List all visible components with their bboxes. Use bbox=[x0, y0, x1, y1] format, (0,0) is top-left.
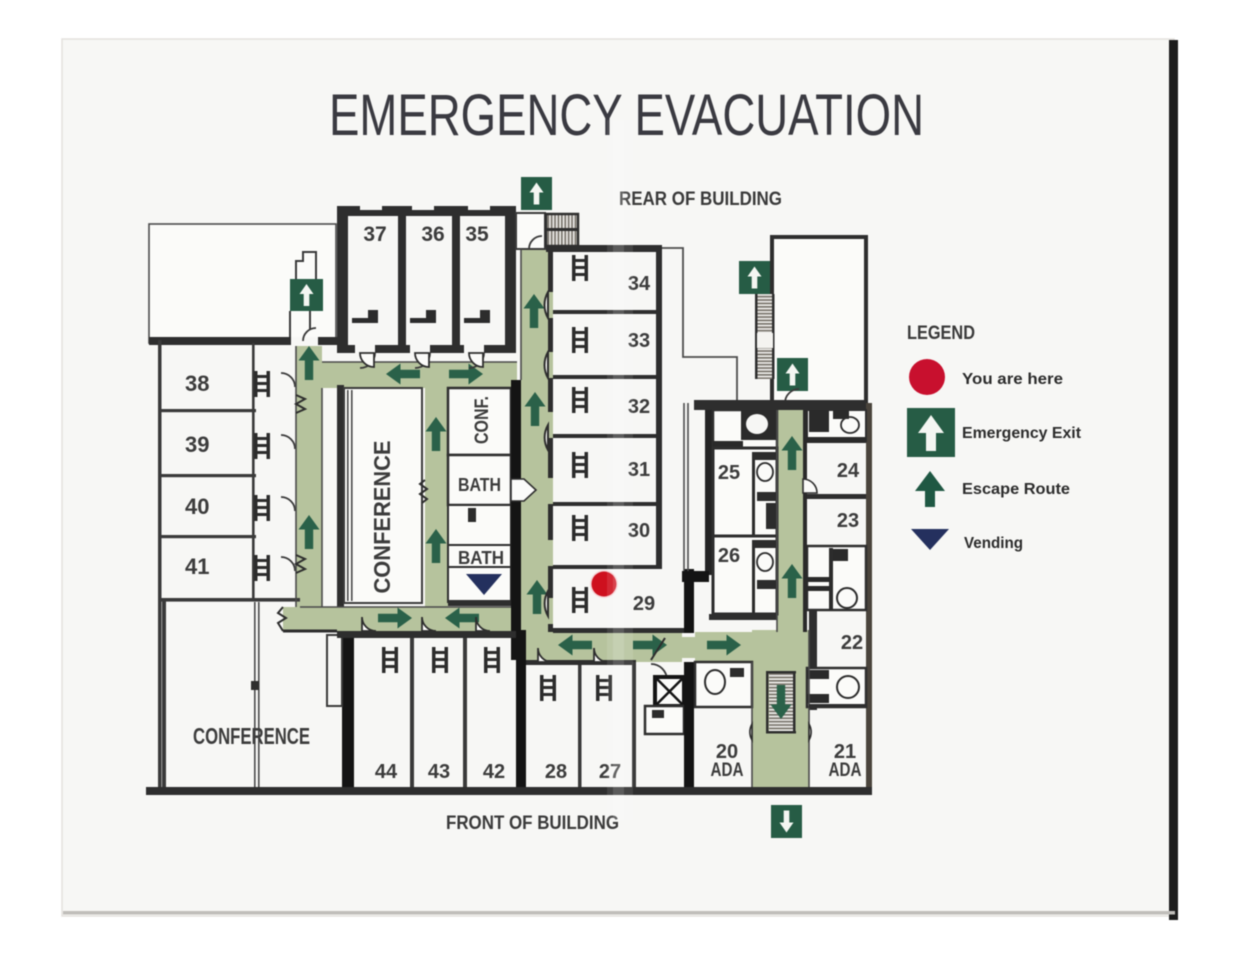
svg-text:25: 25 bbox=[718, 462, 740, 484]
svg-text:ADA: ADA bbox=[829, 760, 862, 781]
svg-text:42: 42 bbox=[483, 761, 505, 783]
svg-text:29: 29 bbox=[633, 593, 655, 615]
svg-text:40: 40 bbox=[185, 494, 209, 519]
svg-text:22: 22 bbox=[841, 632, 863, 654]
svg-text:BATH: BATH bbox=[458, 548, 504, 568]
svg-text:44: 44 bbox=[375, 761, 398, 783]
svg-text:Emergency Exit: Emergency Exit bbox=[962, 425, 1082, 442]
svg-text:43: 43 bbox=[428, 761, 450, 783]
svg-text:Vending: Vending bbox=[964, 535, 1023, 552]
svg-text:39: 39 bbox=[185, 432, 209, 457]
svg-text:41: 41 bbox=[185, 554, 209, 579]
svg-text:BATH: BATH bbox=[458, 475, 501, 495]
svg-text:23: 23 bbox=[837, 510, 859, 532]
svg-text:FRONT OF BUILDING: FRONT OF BUILDING bbox=[446, 812, 619, 834]
svg-text:28: 28 bbox=[545, 761, 567, 783]
svg-text:35: 35 bbox=[465, 223, 489, 246]
svg-text:26: 26 bbox=[718, 545, 740, 567]
svg-text:You are here: You are here bbox=[962, 371, 1063, 388]
svg-text:LEGEND: LEGEND bbox=[907, 323, 975, 344]
svg-text:ADA: ADA bbox=[711, 760, 744, 781]
svg-text:CONF.: CONF. bbox=[472, 396, 493, 444]
svg-text:37: 37 bbox=[363, 223, 386, 246]
svg-text:CONFERENCE: CONFERENCE bbox=[369, 441, 395, 594]
svg-text:24: 24 bbox=[837, 460, 860, 482]
svg-text:Escape Route: Escape Route bbox=[962, 481, 1070, 498]
svg-text:REAR OF BUILDING: REAR OF BUILDING bbox=[619, 189, 782, 210]
svg-text:CONFERENCE: CONFERENCE bbox=[193, 723, 310, 749]
svg-text:36: 36 bbox=[421, 223, 444, 246]
svg-text:38: 38 bbox=[185, 371, 209, 396]
